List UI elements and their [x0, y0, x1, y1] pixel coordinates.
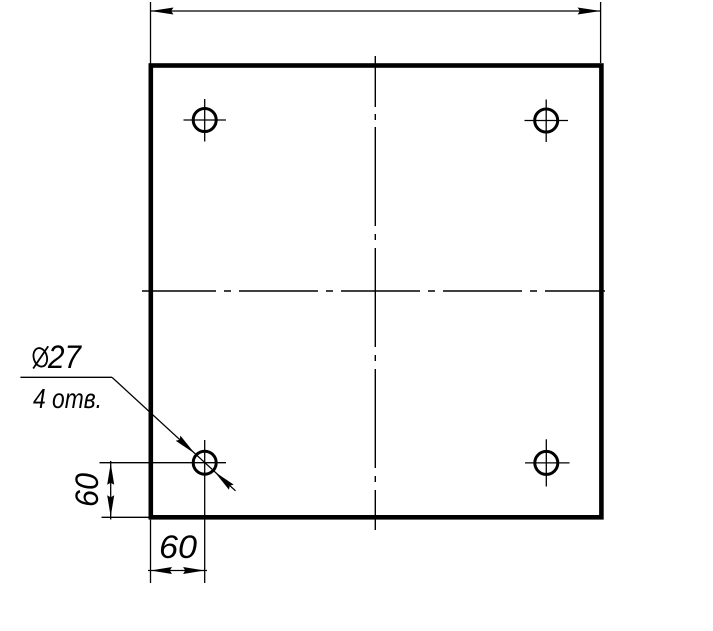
svg-text:60: 60 — [159, 529, 197, 565]
svg-text:60: 60 — [69, 473, 105, 507]
svg-text:4 отв.: 4 отв. — [33, 383, 102, 414]
svg-text:27: 27 — [47, 339, 82, 375]
